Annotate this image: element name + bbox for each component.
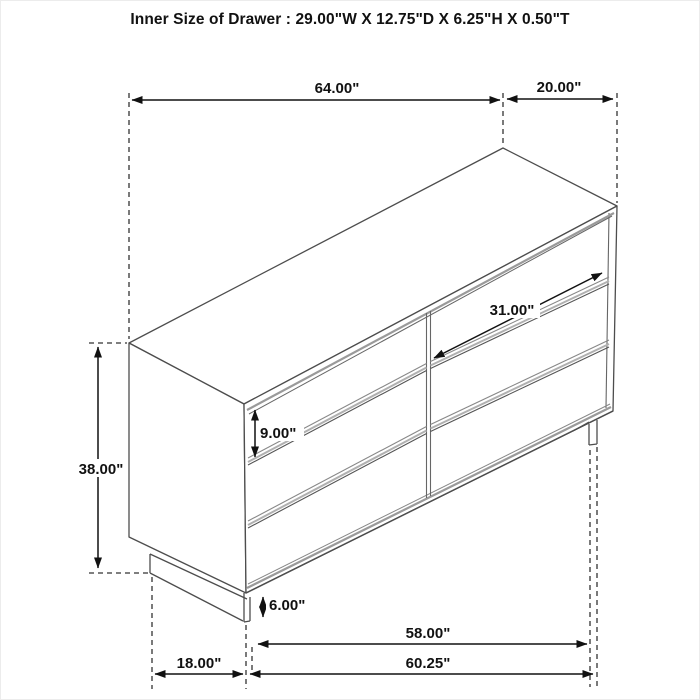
dimension-label: 64.00": [315, 80, 360, 97]
dimension-label: 18.00": [177, 655, 222, 672]
dimension-label: 38.00": [79, 461, 124, 478]
dimension-leg-span: 58.00": [258, 625, 587, 644]
dimension-bottom-width: 60.25": [250, 655, 593, 674]
dimension-overall-height: 38.00": [79, 347, 125, 568]
dimension-top-width: 64.00": [132, 80, 500, 100]
dimension-label: 20.00": [537, 79, 582, 96]
front-right-leg: [589, 420, 597, 445]
dimension-label: 60.25": [406, 655, 451, 672]
dimension-diagram: Inner Size of Drawer : 29.00"W X 12.75"D…: [0, 0, 700, 700]
dimension-label: 31.00": [490, 302, 535, 319]
dimension-label: 9.00": [260, 425, 296, 442]
dimension-top-depth: 20.00": [507, 79, 613, 99]
dimension-label: 58.00": [406, 625, 451, 642]
dimension-label: 6.00": [269, 597, 305, 614]
dimension-bottom-depth: 18.00": [155, 655, 243, 674]
dresser-drawing: 64.00" 20.00" 38.00" 31.00" 9.00": [1, 1, 699, 699]
dimension-base-height: 6.00": [263, 594, 308, 617]
